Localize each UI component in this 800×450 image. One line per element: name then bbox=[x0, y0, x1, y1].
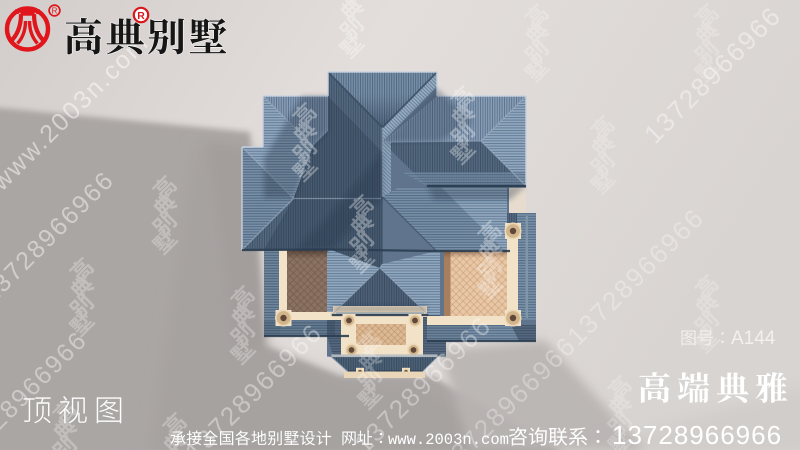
svg-text:www.2003n.com: www.2003n.com bbox=[388, 431, 509, 449]
svg-text:R: R bbox=[52, 7, 58, 16]
svg-text:13728966966: 13728966966 bbox=[612, 420, 782, 450]
svg-text:A144: A144 bbox=[731, 328, 776, 349]
svg-text:R: R bbox=[137, 10, 145, 22]
